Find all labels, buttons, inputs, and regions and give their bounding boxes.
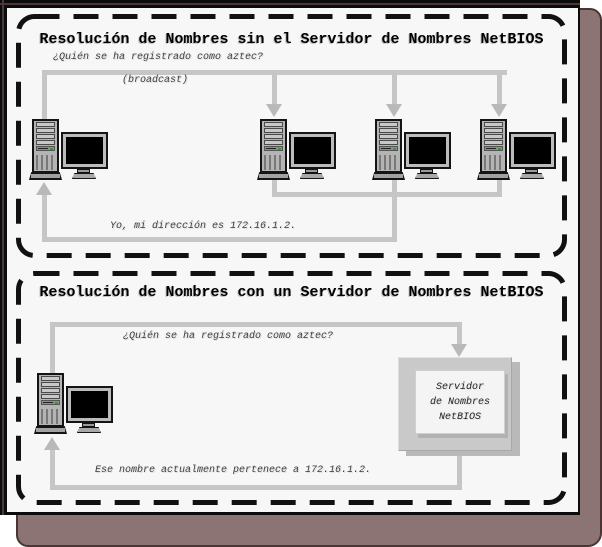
power-led bbox=[55, 402, 58, 404]
connector-line bbox=[272, 74, 277, 105]
frame-accent-line bbox=[2, 0, 4, 515]
monitor-neck bbox=[420, 169, 433, 173]
panel2-title: Resolución de Nombres con un Servidor de… bbox=[16, 284, 567, 301]
monitor-stand bbox=[300, 173, 324, 179]
connector-line bbox=[50, 449, 55, 490]
computer-icon bbox=[260, 118, 336, 181]
monitor-icon bbox=[404, 132, 451, 169]
panel1-title: Resolución de Nombres sin el Servidor de… bbox=[16, 31, 567, 48]
connector-line bbox=[497, 74, 502, 105]
reply-label: Yo, mi dirección es 172.16.1.2. bbox=[110, 221, 296, 232]
tower-icon bbox=[480, 119, 507, 173]
tower-vents bbox=[484, 155, 503, 170]
power-led bbox=[498, 148, 501, 150]
monitor-screen bbox=[409, 137, 446, 164]
tower-icon bbox=[260, 119, 287, 173]
connector-line bbox=[272, 192, 502, 197]
connector-line bbox=[457, 326, 462, 345]
arrow-down-icon bbox=[451, 344, 467, 357]
tower-vents bbox=[264, 155, 283, 170]
connector-line bbox=[42, 237, 397, 242]
tower-base bbox=[257, 172, 290, 180]
tower-base bbox=[477, 172, 510, 180]
arrow-down-icon bbox=[386, 104, 402, 117]
question-label: ¿Quién se ha registrado como aztec? bbox=[123, 331, 333, 342]
monitor-neck bbox=[525, 169, 538, 173]
netbios-server-box: Servidor de Nombres NetBIOS bbox=[398, 357, 512, 451]
tower-icon bbox=[32, 119, 59, 173]
server-label-line: NetBIOS bbox=[439, 410, 481, 425]
tower-icon bbox=[37, 373, 64, 427]
tower-vents bbox=[36, 155, 55, 170]
monitor-stand bbox=[77, 427, 101, 433]
monitor-icon bbox=[61, 132, 108, 169]
monitor-screen bbox=[66, 137, 103, 164]
tower-base bbox=[29, 172, 62, 180]
frame-accent-line bbox=[0, 3, 580, 5]
arrow-down-icon bbox=[266, 104, 282, 117]
computer-icon bbox=[480, 118, 556, 181]
tower-vents bbox=[41, 409, 60, 424]
monitor-icon bbox=[66, 386, 113, 423]
monitor-screen bbox=[71, 391, 108, 418]
tower-icon bbox=[375, 119, 402, 173]
diagram-canvas: Resolución de Nombres sin el Servidor de… bbox=[0, 0, 602, 547]
arrow-down-icon bbox=[491, 104, 507, 117]
monitor-icon bbox=[289, 132, 336, 169]
connector-line bbox=[392, 192, 397, 242]
power-led bbox=[393, 148, 396, 150]
arrow-up-icon bbox=[44, 437, 60, 450]
power-led bbox=[278, 148, 281, 150]
connector-line bbox=[392, 74, 397, 105]
connector-line bbox=[42, 70, 47, 119]
monitor-neck bbox=[77, 169, 90, 173]
tower-base bbox=[34, 426, 67, 434]
connector-line bbox=[42, 195, 47, 242]
monitor-screen bbox=[294, 137, 331, 164]
monitor-neck bbox=[305, 169, 318, 173]
tower-base bbox=[372, 172, 405, 180]
monitor-stand bbox=[415, 173, 439, 179]
monitor-stand bbox=[72, 173, 96, 179]
power-led bbox=[50, 148, 53, 150]
broadcast-label: (broadcast) bbox=[122, 75, 188, 86]
monitor-neck bbox=[82, 423, 95, 427]
tower-vents bbox=[379, 155, 398, 170]
monitor-stand bbox=[520, 173, 544, 179]
computer-icon bbox=[375, 118, 451, 181]
server-label-line: de Nombres bbox=[430, 395, 490, 410]
server-label-line: Servidor bbox=[436, 380, 484, 395]
netbios-server-label-box: Servidor de Nombres NetBIOS bbox=[415, 370, 505, 434]
connector-line bbox=[50, 322, 55, 373]
computer-icon bbox=[37, 372, 113, 435]
monitor-icon bbox=[509, 132, 556, 169]
reply-label: Ese nombre actualmente pertenece a 172.1… bbox=[95, 465, 371, 476]
question-label: ¿Quién se ha registrado como aztec? bbox=[53, 52, 263, 63]
computer-icon bbox=[32, 118, 108, 181]
connector-line bbox=[50, 322, 462, 327]
monitor-screen bbox=[514, 137, 551, 164]
connector-line bbox=[50, 485, 462, 490]
arrow-up-icon bbox=[36, 182, 52, 195]
